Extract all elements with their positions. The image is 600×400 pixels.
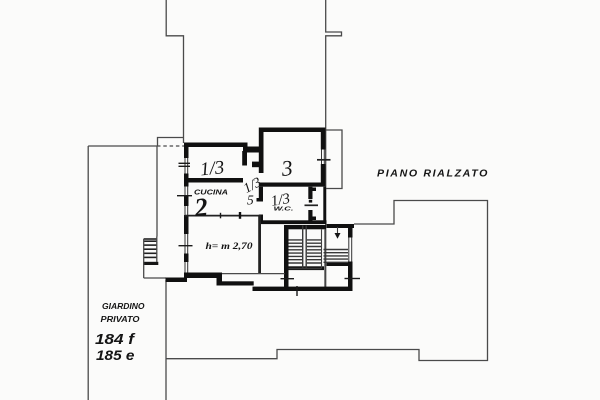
svg-text:5: 5 — [247, 193, 254, 208]
svg-text:184 f: 184 f — [95, 331, 136, 348]
svg-text:PRIVATO: PRIVATO — [101, 315, 141, 324]
svg-text:1/3: 1/3 — [270, 191, 292, 210]
svg-text:GIARDINO: GIARDINO — [102, 302, 145, 311]
svg-text:185 e: 185 e — [96, 347, 135, 363]
svg-text:h= m 2,70: h= m 2,70 — [206, 241, 254, 251]
svg-text:1/3: 1/3 — [199, 157, 225, 180]
svg-text:PIANO RIALZATO: PIANO RIALZATO — [377, 168, 489, 180]
